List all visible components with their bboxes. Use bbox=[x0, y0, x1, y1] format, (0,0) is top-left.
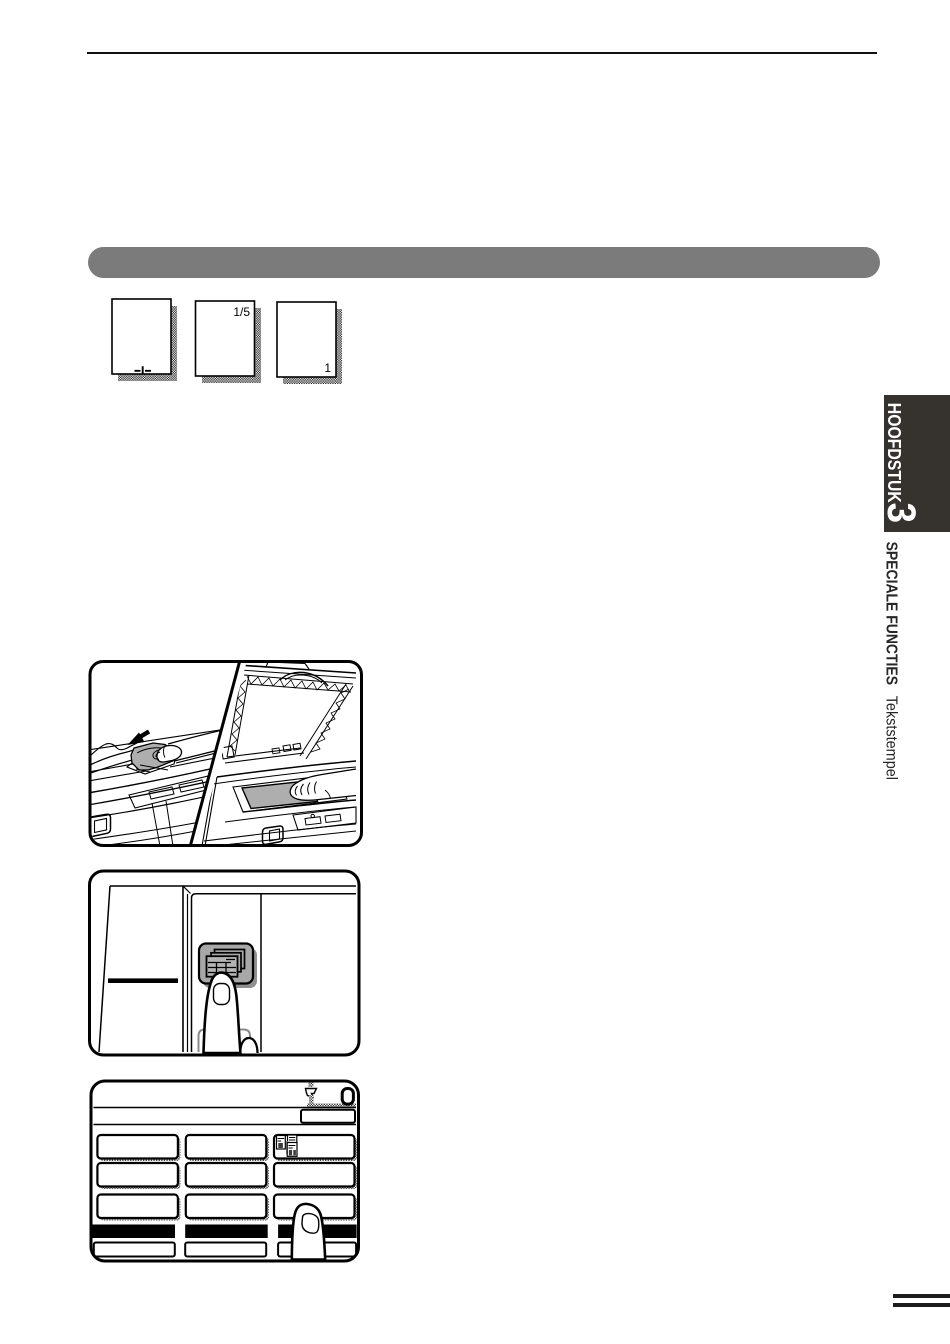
svg-text:1/5: 1/5 bbox=[233, 305, 250, 319]
svg-text:3: 3 bbox=[879, 503, 923, 524]
svg-text:HOOFDSTUK: HOOFDSTUK bbox=[884, 403, 905, 503]
svg-text:1: 1 bbox=[324, 361, 331, 375]
svg-text:Tekststempel: Tekststempel bbox=[883, 696, 900, 780]
svg-text:SPECIALE FUNCTIES: SPECIALE FUNCTIES bbox=[883, 542, 900, 685]
